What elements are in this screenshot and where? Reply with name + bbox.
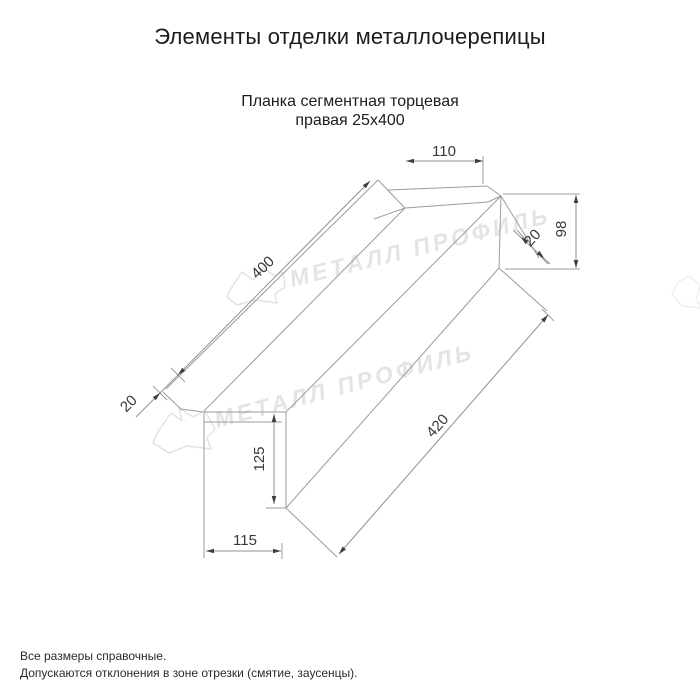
flange-end-cut-edge — [378, 180, 405, 208]
top-corner-fold — [374, 208, 405, 219]
dim-label-top-width: 110 — [432, 143, 456, 160]
hem-connector — [487, 186, 501, 196]
arrowhead — [406, 159, 414, 164]
logo-watermark-shape — [153, 408, 215, 453]
technical-drawing-page: Элементы отделки металлочерепицы Планка … — [0, 0, 700, 700]
flange-hem-line — [405, 202, 488, 208]
dim-label-left-height: 125 — [251, 446, 268, 471]
left-hem-fold — [163, 392, 203, 412]
arrowhead — [574, 195, 579, 203]
flange-upper-long-edge — [166, 180, 378, 389]
arrowhead — [272, 496, 277, 504]
bottom-cut-edge — [286, 508, 337, 557]
dim-label-left-width: 115 — [233, 532, 257, 549]
flange-hem-line — [388, 186, 487, 190]
arrowhead — [273, 549, 281, 554]
dimension-labels: 110 98 20 400 420 20 125 115 — [117, 143, 570, 549]
arrowhead — [206, 549, 214, 554]
footnotes: Все размеры справочные. Допускаются откл… — [20, 648, 357, 682]
hem-connector — [488, 196, 501, 202]
logo-watermark-shape-partial — [672, 276, 700, 308]
right-end-bottom-edge — [499, 268, 547, 311]
dim-label-bottom-length: 420 — [423, 411, 452, 441]
dimension-drawing: МЕТАЛЛ ПРОФИЛЬ МЕТАЛЛ ПРОФИЛЬ — [0, 0, 700, 700]
footnote-line-2: Допускаются отклонения в зоне отрезки (с… — [20, 665, 357, 682]
dimension-tick — [540, 256, 548, 264]
dim-label-end-height: 98 — [553, 221, 570, 238]
arrowhead — [475, 159, 483, 164]
footnote-line-1: Все размеры справочные. — [20, 648, 357, 665]
dim-label-left-hem: 20 — [117, 392, 141, 416]
arrowhead — [574, 260, 579, 268]
